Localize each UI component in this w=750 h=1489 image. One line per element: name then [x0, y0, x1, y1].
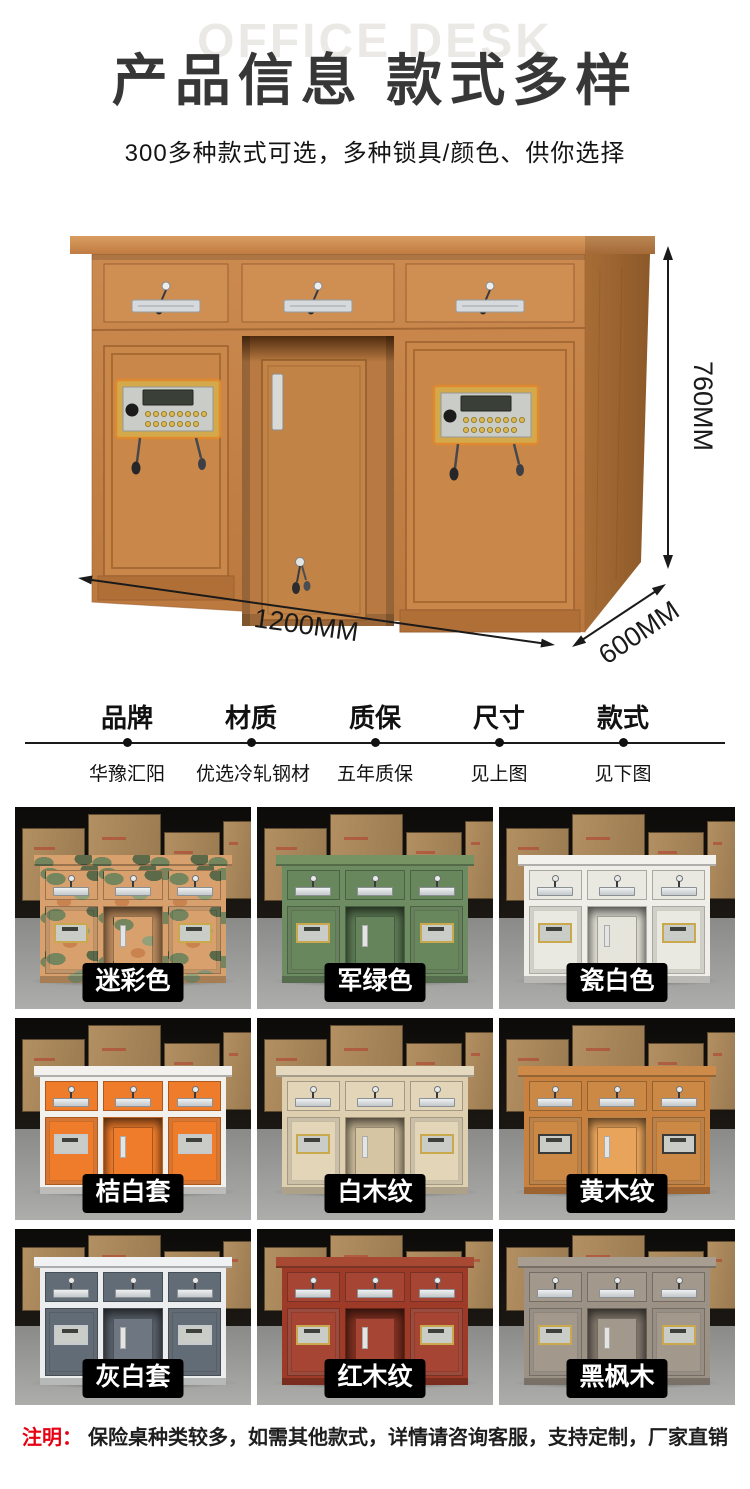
lock-panel-icon: [538, 1325, 572, 1345]
desk-tabletop: [518, 1257, 716, 1268]
spec-dot: [247, 738, 256, 747]
desk-drawer: [587, 870, 647, 900]
desk-drawer: [168, 1272, 221, 1302]
keyhole-icon: [130, 1086, 137, 1093]
desk-tabletop: [276, 1257, 474, 1268]
spec-label: 质保: [320, 700, 430, 736]
desk-drawer: [529, 870, 582, 900]
spec-value: 华豫汇阳: [72, 759, 182, 786]
drawer-handle: [357, 887, 393, 896]
desk-drawer: [652, 1272, 705, 1302]
desk-tabletop: [518, 855, 716, 866]
drawer-handle: [53, 1289, 89, 1298]
desk-drawer: [287, 1272, 340, 1302]
door-handle-slot: [120, 925, 126, 947]
variant-label: 桔白套: [82, 1174, 183, 1213]
drawer-handle: [537, 1289, 573, 1298]
lock-panel-icon: [662, 923, 696, 943]
door-handle-slot: [362, 1136, 368, 1158]
variant-card: 军绿色: [257, 807, 493, 1009]
variant-label: 白木纹: [324, 1174, 425, 1213]
keyhole-icon: [372, 1086, 379, 1093]
variant-label: 瓷白色: [566, 963, 667, 1002]
desk-drawer: [103, 870, 163, 900]
keyhole-icon: [68, 1086, 75, 1093]
drawer-handle: [295, 887, 331, 896]
door-handle-slot: [362, 925, 368, 947]
drawer-handle: [419, 1289, 455, 1298]
variant-card: 黑枫木: [499, 1229, 735, 1405]
desk-drawer: [529, 1272, 582, 1302]
spec-dot: [123, 738, 132, 747]
spec-value: 见上图: [444, 759, 554, 786]
desk-drawer: [45, 1081, 98, 1111]
desk-drawer: [345, 870, 405, 900]
desk-drawer: [410, 1272, 463, 1302]
drawer-handle: [295, 1098, 331, 1107]
variant-card: 瓷白色: [499, 807, 735, 1009]
drawer-handle: [537, 1098, 573, 1107]
keyhole-icon: [614, 1086, 621, 1093]
desk-drawer: [287, 1081, 340, 1111]
drawer-handle: [53, 1098, 89, 1107]
lock-panel-icon: [662, 1134, 696, 1154]
variant-label: 黑枫木: [566, 1359, 667, 1398]
bottom-note: 注明：保险桌种类较多，如需其他款式，详情请咨询客服，支持定制，厂家直销: [0, 1421, 750, 1450]
keyhole-icon: [552, 1086, 559, 1093]
keyhole-icon: [68, 875, 75, 882]
desk-drawer: [345, 1272, 405, 1302]
drawer-handle: [53, 887, 89, 896]
lock-panel-icon: [296, 1325, 330, 1345]
desk-drawer: [652, 1081, 705, 1111]
variant-card: 白木纹: [257, 1018, 493, 1220]
desk-drawer: [168, 870, 221, 900]
desk-left-pedestal: [98, 346, 234, 600]
note-text: 保险桌种类较多，如需其他款式，详情请咨询客服，支持定制，厂家直销: [88, 1427, 728, 1449]
lock-panel-icon: [538, 923, 572, 943]
spec-dot: [619, 738, 628, 747]
lock-panel-icon: [296, 923, 330, 943]
drawer-handle: [115, 1289, 151, 1298]
lock-panel-icon: [420, 1325, 454, 1345]
keyhole-icon: [434, 875, 441, 882]
lock-panel-icon: [178, 1325, 212, 1345]
door-handle-slot: [604, 925, 610, 947]
desk-drawer: [103, 1081, 163, 1111]
spec-col-size: 尺寸 见上图: [444, 700, 554, 786]
keyhole-icon: [192, 1086, 199, 1093]
spec-dot: [495, 738, 504, 747]
keyhole-icon: [192, 1277, 199, 1284]
keyhole-icon: [68, 1277, 75, 1284]
hero-desk-figure: 760MM 1200MM 600MM: [0, 210, 750, 675]
header: OFFICE DESK 产品信息 款式多样 300多种款式可选，多种锁具/颜色、…: [0, 0, 750, 210]
spec-value: 优选冷轧钢材: [196, 759, 306, 786]
drawer-handle: [295, 1289, 331, 1298]
lock-panel-icon: [178, 923, 212, 943]
desk-tabletop: [34, 855, 232, 866]
desk-drawer: [529, 1081, 582, 1111]
keyhole-icon: [310, 1086, 317, 1093]
keyhole-icon: [372, 875, 379, 882]
drawer-handle: [599, 1289, 635, 1298]
spec-value: 五年质保: [320, 759, 430, 786]
desk-side-panel: [585, 254, 650, 632]
lock-panel-icon: [420, 923, 454, 943]
variant-label: 灰白套: [82, 1359, 183, 1398]
door-handle-slot: [604, 1327, 610, 1349]
lock-panel-icon: [54, 1325, 88, 1345]
desk-drawer: [587, 1272, 647, 1302]
keyhole-icon: [676, 1086, 683, 1093]
lock-panel-icon: [538, 1134, 572, 1154]
keyhole-icon: [192, 875, 199, 882]
drawer-handle: [599, 1098, 635, 1107]
keyhole-icon: [552, 1277, 559, 1284]
desk-drawer: [45, 870, 98, 900]
desk-tabletop: [276, 1066, 474, 1077]
desk-tabletop: [70, 236, 655, 254]
drawer-handle: [537, 887, 573, 896]
spec-col-warranty: 质保 五年质保: [320, 700, 430, 786]
desk-drawer: [168, 1081, 221, 1111]
desk-tabletop: [276, 855, 474, 866]
keyhole-icon: [130, 875, 137, 882]
desk-drawer: [587, 1081, 647, 1111]
spec-value: 见下图: [568, 759, 678, 786]
keyhole-icon: [614, 875, 621, 882]
keyhole-icon: [676, 875, 683, 882]
variant-label: 红木纹: [324, 1359, 425, 1398]
spec-strip: 品牌 华豫汇阳 材质 优选冷轧钢材 质保 五年质保 尺寸 见上图 款式: [0, 700, 750, 790]
variant-card: 桔白套: [15, 1018, 251, 1220]
lock-panel-icon: [178, 1134, 212, 1154]
keyhole-icon: [130, 1277, 137, 1284]
variant-label: 迷彩色: [82, 963, 183, 1002]
lock-panel-icon: [54, 923, 88, 943]
keyhole-icon: [372, 1277, 379, 1284]
variant-card: 迷彩色: [15, 807, 251, 1009]
door-handle-slot: [362, 1327, 368, 1349]
depth-dimension-label: 600MM: [593, 595, 684, 670]
page-subtitle: 300多种款式可选，多种锁具/颜色、供你选择: [0, 133, 750, 168]
desk-drawer: [45, 1272, 98, 1302]
height-dimension: [663, 246, 673, 569]
desk-drawers: [92, 264, 585, 330]
door-handle-slot: [120, 1327, 126, 1349]
variant-card: 灰白套: [15, 1229, 251, 1405]
drawer-handle: [177, 1098, 213, 1107]
drawer-handle: [419, 1098, 455, 1107]
product-info-page: OFFICE DESK 产品信息 款式多样 300多种款式可选，多种锁具/颜色、…: [0, 0, 750, 1489]
desk-tabletop: [34, 1257, 232, 1268]
lock-panel-icon: [420, 1134, 454, 1154]
desk-drawer: [410, 870, 463, 900]
keyhole-icon: [676, 1277, 683, 1284]
desk-drawer: [652, 870, 705, 900]
desk-drawer: [287, 870, 340, 900]
variant-label: 军绿色: [324, 963, 425, 1002]
drawer-handle: [357, 1098, 393, 1107]
page-title: 产品信息 款式多样: [0, 36, 750, 117]
spec-dot: [371, 738, 380, 747]
note-prefix: 注明：: [22, 1427, 82, 1449]
drawer-handle: [661, 1098, 697, 1107]
variant-label: 黄木纹: [566, 1174, 667, 1213]
desk-drawer: [103, 1272, 163, 1302]
desk-right-pedestal: [400, 342, 580, 632]
height-dimension-label: 760MM: [688, 361, 718, 451]
door-handle-slot: [604, 1136, 610, 1158]
keyhole-icon: [434, 1277, 441, 1284]
desk-drawer: [345, 1081, 405, 1111]
keyhole-icon: [552, 875, 559, 882]
spec-col-brand: 品牌 华豫汇阳: [72, 700, 182, 786]
hero-desk-svg: 760MM 1200MM 600MM: [0, 210, 750, 675]
drawer-handle: [661, 1289, 697, 1298]
drawer-handle: [177, 1289, 213, 1298]
spec-label: 款式: [568, 700, 678, 736]
keyhole-icon: [434, 1086, 441, 1093]
drawer-handle: [115, 1098, 151, 1107]
desk-tabletop: [34, 1066, 232, 1077]
desk-middle-recess: [242, 336, 394, 626]
lock-panel-icon: [54, 1134, 88, 1154]
keyhole-icon: [614, 1277, 621, 1284]
spec-col-style: 款式 见下图: [568, 700, 678, 786]
variant-card: 红木纹: [257, 1229, 493, 1405]
desk-tabletop: [518, 1066, 716, 1077]
variant-grid: 迷彩色: [15, 807, 735, 1405]
keyhole-icon: [310, 1277, 317, 1284]
drawer-handle: [115, 887, 151, 896]
lock-panel-icon: [296, 1134, 330, 1154]
drawer-handle: [419, 887, 455, 896]
door-handle-slot: [120, 1136, 126, 1158]
desk-drawer: [410, 1081, 463, 1111]
spec-label: 品牌: [72, 700, 182, 736]
lock-panel-icon: [662, 1325, 696, 1345]
drawer-handle: [599, 887, 635, 896]
variant-card: 黄木纹: [499, 1018, 735, 1220]
spec-label: 尺寸: [444, 700, 554, 736]
drawer-handle: [177, 887, 213, 896]
keyhole-icon: [310, 875, 317, 882]
drawer-handle: [357, 1289, 393, 1298]
spec-label: 材质: [196, 700, 306, 736]
drawer-handle: [661, 887, 697, 896]
spec-col-material: 材质 优选冷轧钢材: [196, 700, 306, 786]
